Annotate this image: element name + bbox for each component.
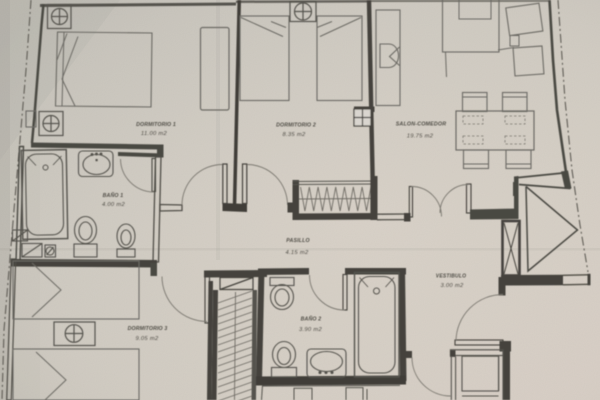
svg-text:DORMITORIO 2: DORMITORIO 2 xyxy=(276,123,316,129)
svg-text:3.00 m2: 3.00 m2 xyxy=(440,283,464,289)
svg-text:4.15 m2: 4.15 m2 xyxy=(285,250,309,256)
svg-text:BAÑO 2: BAÑO 2 xyxy=(301,316,322,323)
svg-text:4.00 m2: 4.00 m2 xyxy=(102,202,126,208)
svg-text:DORMITORIO 3: DORMITORIO 3 xyxy=(128,326,168,332)
svg-text:19.75 m2: 19.75 m2 xyxy=(407,134,434,140)
svg-text:DORMITORIO 1: DORMITORIO 1 xyxy=(136,122,176,128)
svg-text:11.00 m2: 11.00 m2 xyxy=(141,131,168,137)
svg-text:VESTIBULO: VESTIBULO xyxy=(436,274,466,280)
svg-text:SALON-COMEDOR: SALON-COMEDOR xyxy=(396,122,447,128)
svg-text:8.35 m2: 8.35 m2 xyxy=(282,132,306,138)
svg-text:BAÑO 1: BAÑO 1 xyxy=(103,192,124,199)
svg-text:9.05 m2: 9.05 m2 xyxy=(135,336,159,342)
svg-text:PASILLO: PASILLO xyxy=(286,238,310,244)
svg-text:3.90 m2: 3.90 m2 xyxy=(299,327,323,333)
